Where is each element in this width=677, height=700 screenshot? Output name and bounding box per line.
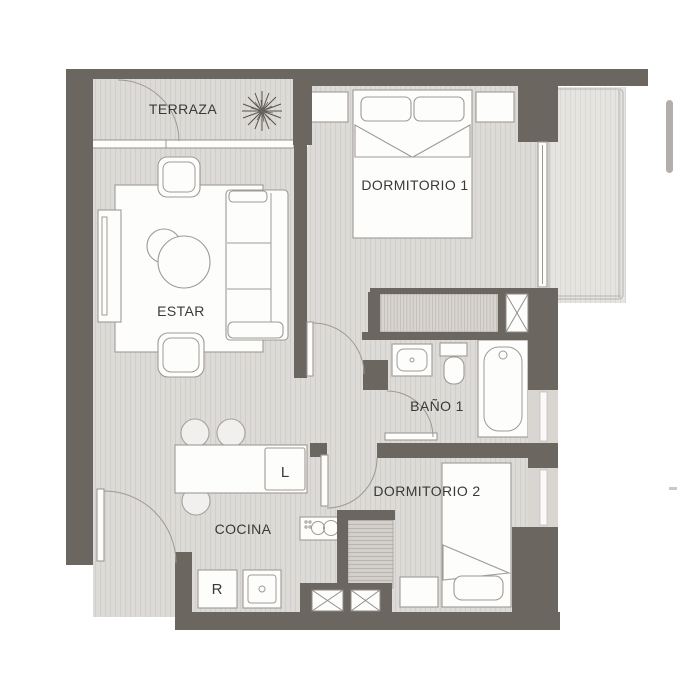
bathroom-sink <box>392 344 432 376</box>
sofa <box>226 190 288 340</box>
wall-terrace-column <box>293 79 312 145</box>
nightstand <box>310 92 348 122</box>
bathroom-window <box>540 392 547 441</box>
wall-bottom <box>175 612 560 630</box>
estar-label: ESTAR <box>157 303 205 319</box>
bathtub <box>478 340 528 437</box>
toilet <box>440 343 467 384</box>
console-table <box>98 210 121 322</box>
terraza-label: TERRAZA <box>149 101 217 117</box>
duct-x-icon <box>312 590 343 611</box>
floor-plan-drawing: TERRAZA DORMITORIO 1 ESTAR BAÑO 1 COCINA… <box>0 0 677 700</box>
wall-top-right <box>294 69 648 86</box>
right-edge-mark <box>669 487 677 490</box>
dormitorio2-label: DORMITORIO 2 <box>373 483 480 499</box>
terrace-sliding-door[interactable] <box>90 140 294 148</box>
cooktop <box>300 517 339 540</box>
wall-bath-west-block <box>363 360 388 390</box>
dormitorio1-label: DORMITORIO 1 <box>361 177 468 193</box>
balcony-floor <box>547 87 626 303</box>
double-bed <box>353 90 472 238</box>
wall-living-bedroom1 <box>294 145 307 378</box>
wall-vestibule-left <box>337 510 348 590</box>
living-room-furniture <box>98 157 288 377</box>
scrollbar-thumb[interactable] <box>666 100 673 173</box>
duct-x-icon <box>506 294 528 332</box>
bedroom1-closet <box>380 294 498 332</box>
nightstand <box>400 577 438 607</box>
bedroom2-window <box>540 470 547 525</box>
armchair-large <box>158 236 210 288</box>
wall-east-lower <box>512 527 558 612</box>
wall-balcony-pier <box>518 79 558 142</box>
duct-x-icon <box>351 590 380 611</box>
wall-bath-south <box>377 443 528 458</box>
wall-east-middle <box>528 443 558 468</box>
wall-closet-top <box>370 288 536 294</box>
stool <box>181 419 209 447</box>
wall-entry-stub <box>175 552 192 630</box>
wall-shaft-divider <box>498 288 506 340</box>
side-table-top <box>158 157 200 197</box>
plant-icon <box>242 91 282 131</box>
nightstand <box>476 92 514 122</box>
bano1-label: BAÑO 1 <box>410 398 464 414</box>
side-table-bottom <box>158 333 204 377</box>
bedroom2-closet <box>348 520 393 588</box>
stool <box>217 419 245 447</box>
fridge-label: R <box>212 581 223 598</box>
cocina-label: COCINA <box>215 521 272 537</box>
kitchen-sink <box>243 570 281 608</box>
wall-top-left <box>66 69 294 79</box>
floor-plan-page: TERRAZA DORMITORIO 1 ESTAR BAÑO 1 COCINA… <box>0 0 677 700</box>
wall-left <box>66 69 93 565</box>
washer-label: L <box>281 464 289 481</box>
wall-east-upper <box>528 288 558 390</box>
